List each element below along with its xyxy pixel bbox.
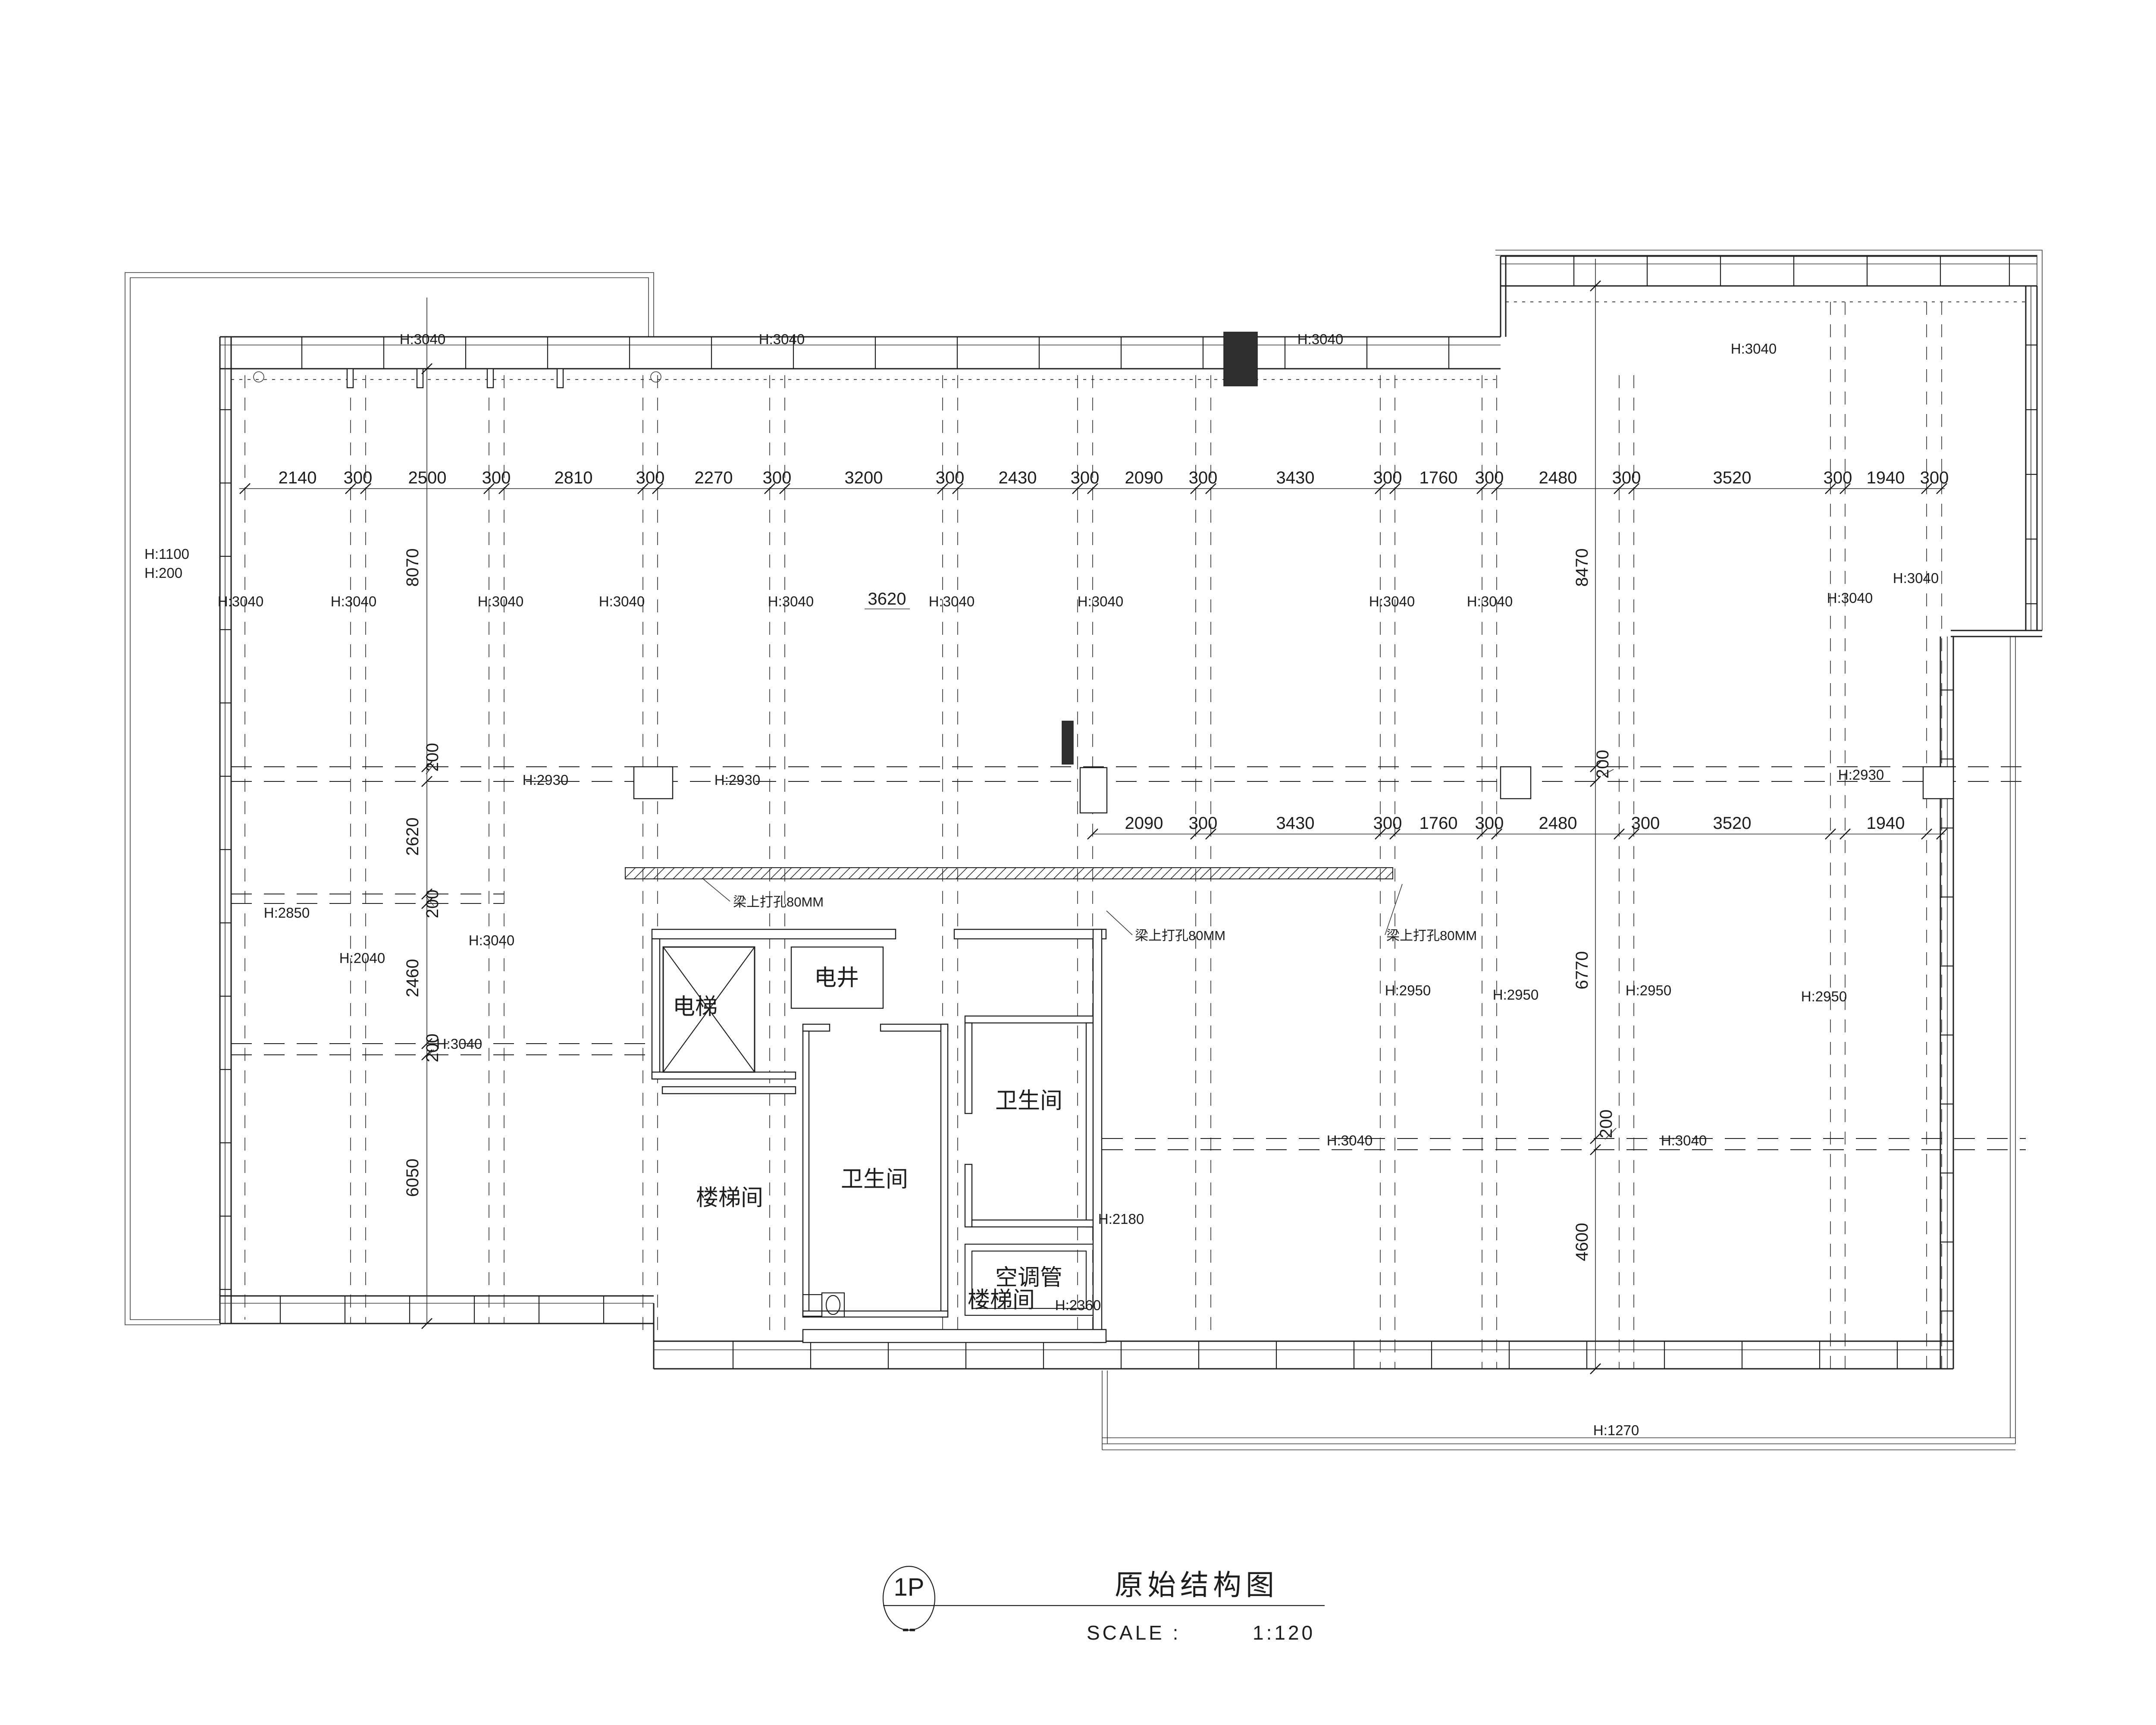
dim-label: 1760: [1420, 468, 1458, 487]
dimension-labels-middle: 2090 300 3430 300 1760 300 2480 300 3520…: [1125, 814, 1905, 833]
dim-label: 300: [344, 468, 373, 487]
height-label: H:3040: [436, 1036, 482, 1052]
dim-label: 2500: [408, 468, 447, 487]
floor-plan-canvas: 2140 300 2500 300 2810 300 2270 300 3200…: [0, 0, 2156, 1725]
dim-label: 2270: [695, 468, 733, 487]
column-grid-lines: [231, 302, 2026, 1369]
hatched-column: [1224, 332, 1257, 386]
dim-label: 2460: [403, 959, 422, 997]
room-label-bathroom-left: 卫生间: [841, 1167, 908, 1192]
height-label: H:1100: [144, 546, 189, 562]
dim-label: 300: [936, 468, 965, 487]
sheet-subtag: --: [902, 1617, 916, 1640]
dim-label-floating: 3620: [868, 590, 906, 608]
height-label: H:2930: [1838, 767, 1884, 783]
height-label: H:3040: [1661, 1132, 1707, 1148]
dim-label: 2480: [1539, 814, 1577, 833]
dim-label: 3430: [1276, 814, 1315, 833]
height-label: H:3040: [929, 593, 975, 609]
height-label: H:2850: [264, 905, 310, 921]
height-label: H:3040: [1827, 590, 1873, 606]
height-label: H:2360: [1055, 1297, 1101, 1313]
dim-label: 2480: [1539, 468, 1577, 487]
dim-label: 1760: [1420, 814, 1458, 833]
dim-label: 300: [1373, 468, 1402, 487]
room-label-bathroom-right: 卫生间: [995, 1088, 1062, 1113]
dim-label: 200: [1593, 750, 1612, 779]
hatched-pier: [1062, 721, 1073, 764]
dim-label: 2140: [279, 468, 317, 487]
height-label: H:2950: [1493, 987, 1539, 1003]
sheet-tag: 1P: [894, 1573, 924, 1601]
height-label: H:3040: [1893, 570, 1939, 586]
room-label-electric-shaft: 电井: [814, 966, 859, 991]
height-label: H:2950: [1626, 982, 1671, 998]
dim-label: 8470: [1573, 549, 1592, 587]
dim-label: 300: [636, 468, 665, 487]
dim-label: 300: [1475, 468, 1504, 487]
room-label-stairwell-upper: 楼梯间: [696, 1186, 763, 1211]
dimension-labels-right: 8470 200 6770 200 4600: [1573, 549, 1616, 1261]
dim-label: 2090: [1125, 468, 1163, 487]
height-label: H:3040: [1369, 593, 1415, 609]
height-label: H:3040: [218, 593, 263, 609]
height-label: H:3040: [1731, 341, 1777, 357]
dim-label: 300: [763, 468, 792, 487]
dim-label: 6770: [1573, 951, 1592, 990]
height-label: H:3040: [1327, 1132, 1373, 1148]
height-label: H:3040: [1078, 593, 1123, 609]
dim-label: 2620: [403, 818, 422, 856]
dim-label: 3200: [845, 468, 883, 487]
height-label: H:3040: [1467, 593, 1513, 609]
height-label: H:2950: [1385, 982, 1431, 998]
dim-label: 3520: [1713, 468, 1752, 487]
dim-label: 300: [1373, 814, 1402, 833]
dim-label: 200: [1597, 1110, 1616, 1138]
height-label: H:3040: [599, 593, 645, 609]
dim-label: 300: [1475, 814, 1504, 833]
dim-label: 300: [482, 468, 511, 487]
scale-label: SCALE :: [1087, 1621, 1181, 1644]
height-label: H:3040: [768, 593, 814, 609]
dim-label: 300: [1189, 814, 1218, 833]
dim-label: 300: [1631, 814, 1660, 833]
beam-hole-note: 梁上打孔80MM: [1135, 928, 1225, 943]
room-label-ac-duct: 空调管: [995, 1265, 1062, 1290]
room-label-elevator: 电梯: [673, 994, 718, 1019]
dim-label: 2430: [999, 468, 1037, 487]
height-label: H:3040: [759, 331, 805, 347]
dim-label: 4600: [1573, 1223, 1592, 1261]
height-label: H:3040: [331, 593, 376, 609]
dim-label: 2810: [555, 468, 593, 487]
height-label: H:3040: [478, 593, 523, 609]
scale-value: 1:120: [1253, 1621, 1315, 1644]
drawing-title: 原始结构图: [1115, 1569, 1279, 1601]
dim-label: 3520: [1713, 814, 1752, 833]
title-block: 1P -- 原始结构图 SCALE : 1:120: [883, 1566, 1325, 1644]
dim-label: 300: [1612, 468, 1641, 487]
dim-label: 300: [1189, 468, 1218, 487]
dim-label: 3430: [1276, 468, 1315, 487]
height-label: H:3040: [1297, 331, 1343, 347]
dim-label: 300: [1920, 468, 1949, 487]
structural-columns: [347, 332, 1953, 813]
dim-label: 200: [423, 743, 442, 772]
height-label: H:2930: [714, 772, 760, 788]
height-label: H:2930: [523, 772, 568, 788]
beam-hatch-bar: [625, 868, 1393, 879]
room-label-stairwell-lower: 楼梯间: [968, 1288, 1035, 1313]
height-label: H:3040: [400, 331, 445, 347]
dimension-labels-top: 2140 300 2500 300 2810 300 2270 300 3200…: [279, 468, 1949, 487]
height-label: H:1270: [1593, 1422, 1639, 1438]
height-label: H:200: [144, 565, 182, 581]
beam-hole-note: 梁上打孔80MM: [733, 894, 824, 910]
beam-hole-note: 梁上打孔80MM: [1386, 928, 1477, 943]
height-label: H:2950: [1801, 988, 1847, 1004]
height-label: H:2040: [339, 950, 385, 966]
dim-label: 1940: [1867, 468, 1905, 487]
dim-label: 200: [423, 890, 442, 919]
dim-label: 300: [1824, 468, 1852, 487]
dim-label: 8070: [403, 549, 422, 587]
dim-label: 300: [1071, 468, 1100, 487]
dim-label: 6050: [403, 1159, 422, 1197]
height-label: H:3040: [469, 932, 514, 948]
dim-label: 2090: [1125, 814, 1163, 833]
dim-label: 1940: [1867, 814, 1905, 833]
height-label: H:2180: [1098, 1211, 1144, 1227]
exterior-walls: [220, 256, 2042, 1369]
dimension-labels-left: 8070 200 2620 200 2460 200 6050: [403, 549, 442, 1197]
